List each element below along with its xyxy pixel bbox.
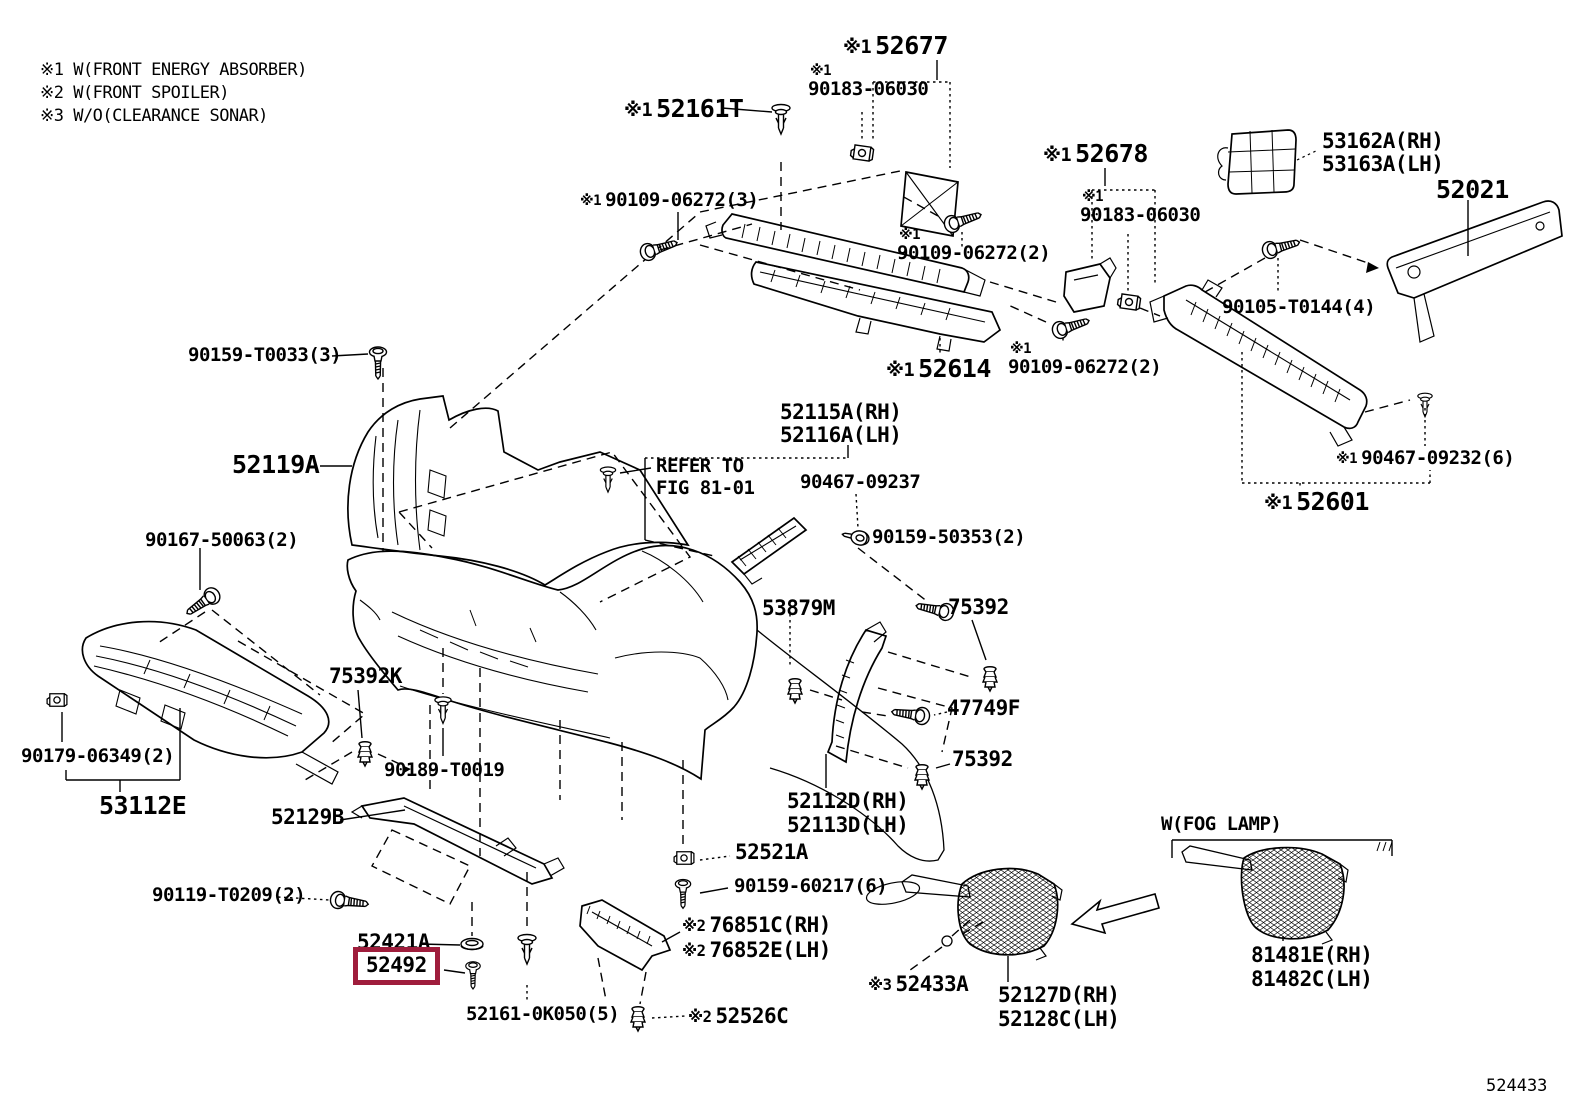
part-label-47749F[interactable]: 47749F: [947, 697, 1020, 720]
bolt-52492-icon: [466, 962, 480, 989]
clip-52521A-icon: [674, 852, 694, 865]
screw-90159-60217-icon: [675, 880, 690, 909]
spoiler-76851-drawing: [580, 900, 670, 970]
clip-75392-top-icon: [983, 667, 997, 691]
part-label-53162A[interactable]: 53162A(RH): [1322, 130, 1443, 153]
clip-90179-icon: [47, 694, 67, 707]
plate-52021-drawing: [1387, 201, 1562, 342]
front-bumper-cover-drawing: [347, 546, 944, 909]
rivet-52161-0K050-icon: [518, 935, 536, 965]
part-label-52161T[interactable]: ※152161T: [624, 95, 743, 122]
part-label-52127D[interactable]: 52127D(RH): [998, 984, 1119, 1007]
part-label-52433A[interactable]: ※352433A: [868, 973, 968, 996]
part-label-90159-50353[interactable]: 90159-50353(2): [872, 527, 1025, 548]
part-label-52601[interactable]: ※152601: [1264, 488, 1369, 515]
legend-line-2: ※2 W(FRONT SPOILER): [40, 83, 229, 103]
rivet-52161T-icon: [772, 105, 790, 135]
part-label-90183-06030-a[interactable]: ※190183-06030: [808, 64, 928, 100]
part-label-75392-top[interactable]: 75392: [948, 596, 1009, 619]
part-label-52678[interactable]: ※152678: [1043, 140, 1148, 167]
clip-90467-09232-icon: [1418, 393, 1432, 417]
part-label-81482C[interactable]: 81482C(LH): [1251, 968, 1372, 991]
legend-line-1: ※1 W(FRONT ENERGY ABSORBER): [40, 60, 307, 80]
screw-90109-2b-icon: [1050, 312, 1091, 340]
part-label-90179-06349[interactable]: 90179-06349(2): [21, 746, 174, 767]
part-label-90105-T0144[interactable]: 90105-T0144(4): [1222, 297, 1375, 318]
screw-47749F-icon: [891, 703, 931, 725]
part-label-52526C[interactable]: ※252526C: [688, 1005, 788, 1028]
screw-90109-3-icon: [638, 234, 679, 262]
part-label-52128C[interactable]: 52128C(LH): [998, 1008, 1119, 1031]
highlight-box-52492: 52492: [353, 947, 440, 985]
screw-90167-icon: [182, 585, 223, 621]
cross-ref-line-2[interactable]: FIG 81-01: [656, 478, 754, 499]
clip-90183-left-icon: [850, 145, 874, 162]
cross-ref-line-1[interactable]: REFER TO: [656, 456, 744, 477]
bracket-52678-drawing: [1064, 258, 1116, 312]
part-label-90159-60217[interactable]: 90159-60217(6): [734, 876, 887, 897]
part-label-90167-50063[interactable]: 90167-50063(2): [145, 530, 298, 551]
part-label-76851C[interactable]: ※276851C(RH): [682, 914, 831, 937]
fog-cover-52127-drawing: [902, 869, 1062, 960]
screw-90119-icon: [329, 891, 369, 913]
figure-number: 524433: [1486, 1076, 1547, 1096]
clip-53879M-icon: [788, 679, 802, 703]
clip-90183-right-icon: [1117, 294, 1141, 311]
parts-diagram-page: ※1 W(FRONT ENERGY ABSORBER) ※2 W(FRONT S…: [0, 0, 1592, 1099]
part-label-52129B[interactable]: 52129B: [271, 806, 344, 829]
part-label-52112D[interactable]: 52112D(RH): [787, 790, 908, 813]
direction-arrow: [1072, 894, 1159, 933]
part-label-53112E[interactable]: 53112E: [99, 792, 186, 819]
part-label-75392K[interactable]: 75392K: [329, 665, 402, 688]
part-label-52119A[interactable]: 52119A: [232, 451, 319, 478]
part-label-90183-06030-b[interactable]: ※190183-06030: [1080, 190, 1200, 226]
grommet-52421A-icon: [461, 939, 483, 950]
fog-cover-81481-drawing: [1182, 842, 1392, 944]
section-note-fog-lamp: W(FOG LAMP): [1161, 814, 1281, 835]
bracket-53162-drawing: [1218, 130, 1318, 194]
part-label-52677[interactable]: ※152677: [843, 32, 948, 59]
part-label-53163A[interactable]: 53163A(LH): [1322, 153, 1443, 176]
part-label-52116A[interactable]: 52116A(LH): [780, 424, 901, 447]
part-label-52021[interactable]: 52021: [1436, 176, 1509, 203]
part-label-90109-06272-2a[interactable]: ※190109-06272(2): [897, 228, 1050, 264]
clip-refer-fig-icon: [600, 467, 615, 492]
upper-retainer-52119-drawing: [348, 396, 688, 585]
part-label-90119-T0209[interactable]: 90119-T0209(2): [152, 885, 305, 906]
part-label-52115A[interactable]: 52115A(RH): [780, 401, 901, 424]
part-label-90467-09232[interactable]: ※190467-09232(6): [1336, 448, 1514, 469]
screw-90105-icon: [1261, 234, 1302, 260]
grommet-90467-09237-icon: [841, 527, 870, 546]
part-label-90109-06272-3[interactable]: ※190109-06272(3): [580, 190, 758, 211]
part-label-90467-09237[interactable]: 90467-09237: [800, 472, 920, 493]
part-label-90189-T0019[interactable]: 90189-T0019: [384, 760, 504, 781]
part-label-52113D[interactable]: 52113D(LH): [787, 814, 908, 837]
part-label-52492[interactable]: 52492: [366, 954, 427, 977]
part-label-90159-T0033[interactable]: 90159-T0033(3): [188, 345, 341, 366]
part-label-53879M[interactable]: 53879M: [762, 597, 835, 620]
clip-75392-bottom-icon: [915, 765, 929, 789]
rivet-90189-icon: [435, 697, 451, 724]
part-label-52521A[interactable]: 52521A: [735, 841, 808, 864]
part-label-75392-bottom[interactable]: 75392: [952, 748, 1013, 771]
part-label-52161-0K050[interactable]: 52161-0K050(5): [466, 1004, 619, 1025]
part-label-52614[interactable]: ※152614: [886, 355, 991, 382]
screw-90159-T0033-icon: [370, 347, 387, 379]
clip-52526C-icon: [631, 1007, 645, 1031]
part-label-90109-06272-2b[interactable]: ※190109-06272(2): [1008, 342, 1161, 378]
support-52614-drawing: [752, 262, 1000, 351]
clip-75392K-icon: [358, 742, 372, 766]
legend-line-3: ※3 W/O(CLEARANCE SONAR): [40, 106, 268, 126]
bracket-52115-drawing: [732, 518, 806, 584]
part-label-81481E[interactable]: 81481E(RH): [1251, 944, 1372, 967]
part-label-76852E[interactable]: ※276852E(LH): [682, 939, 831, 962]
